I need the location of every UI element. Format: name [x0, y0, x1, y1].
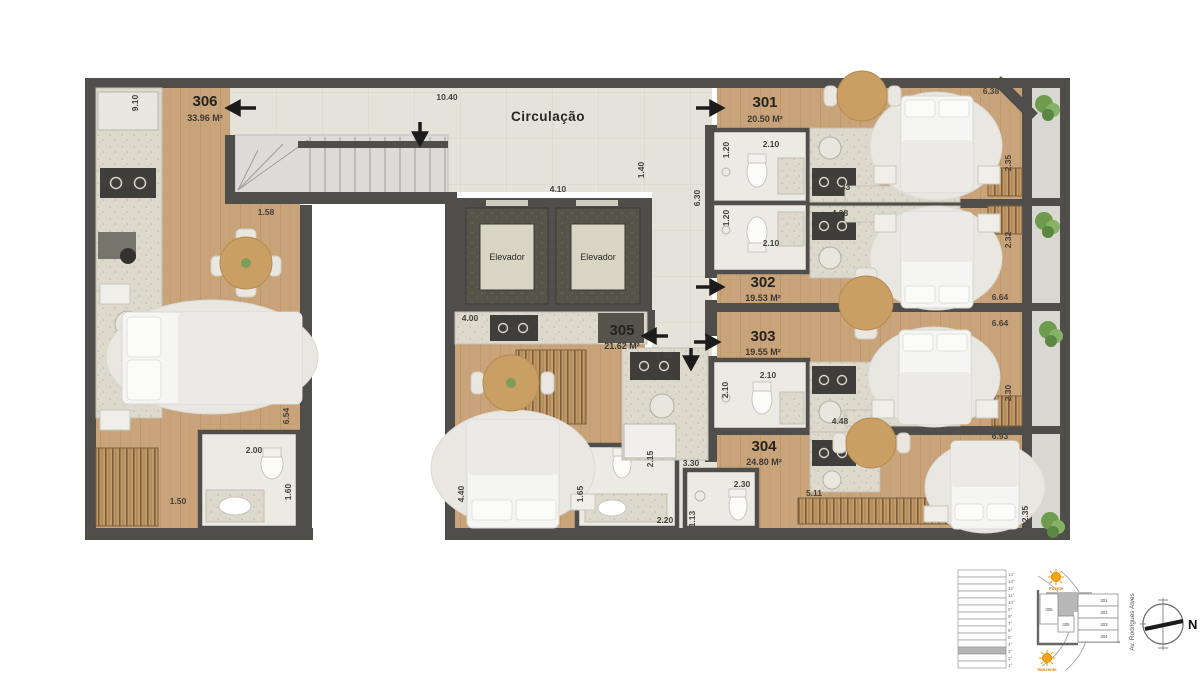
compass-icon: N: [1140, 598, 1197, 650]
dim: 6.30: [692, 189, 702, 206]
keyplan-unit-301: 301: [1100, 598, 1108, 603]
floor-row-label: 5°: [1008, 635, 1013, 640]
floor-row-label: 11°: [1008, 593, 1015, 598]
dim: 6.54: [281, 407, 291, 424]
bed-303: [868, 327, 1000, 427]
keyplan-unit-305: 305: [1062, 622, 1070, 627]
circulation-label: Circulação: [511, 109, 585, 124]
dim: 6.38: [983, 86, 1000, 96]
bed-301: [870, 92, 1002, 200]
dim: 4.10: [550, 184, 567, 194]
dim: 2.35: [1020, 505, 1030, 522]
floor-row-label: 6°: [1008, 628, 1013, 633]
compass-north-label: N: [1188, 617, 1197, 632]
dim: 2.15: [645, 450, 655, 467]
shelf-306: [96, 448, 158, 526]
sun-top-icon: Poente: [1048, 569, 1064, 591]
floor-row-label: 9°: [1008, 607, 1013, 612]
dim: 6.93: [992, 431, 1009, 441]
unit-305-area: 21.62 M²: [604, 341, 640, 351]
floor-row-label: 2°: [1008, 656, 1013, 661]
elevator-left-label: Elevador: [489, 252, 525, 262]
highlighted-floor-row: [958, 647, 1006, 654]
unit-306-number: 306: [192, 93, 217, 110]
dim: 1.13: [687, 510, 697, 527]
dim: 4.33: [834, 182, 851, 192]
dim: 2.30: [734, 479, 751, 489]
bathroom-301: [712, 130, 808, 203]
unit-303-number: 303: [750, 328, 775, 345]
floor-row-label: 7°: [1008, 621, 1013, 626]
dim: 1.60: [283, 483, 293, 500]
dim: 2.10: [760, 370, 777, 380]
elevator-right-label: Elevador: [580, 252, 616, 262]
dim: 10.40: [436, 92, 458, 102]
unit-304-area: 24.80 M²: [746, 457, 782, 467]
stairs: [235, 135, 448, 195]
dim: 4.28: [832, 208, 849, 218]
floorplan-drawing: Elevador Elevador: [0, 0, 1200, 675]
dim: 3.30: [683, 458, 700, 468]
unit-306-area: 33.96 M²: [187, 113, 223, 123]
stair-handrail: [298, 141, 448, 148]
legend-keyplan: 306 305 301 302 303 304 Poente Nascente: [1037, 569, 1136, 672]
floor-row-label: 13°: [1008, 579, 1015, 584]
keyplan-unit-302: 302: [1100, 610, 1108, 615]
unit-304-number: 304: [751, 438, 777, 455]
dim: 6.64: [992, 292, 1009, 302]
sun-bottom-icon: Nascente: [1037, 650, 1057, 672]
dim: 9.10: [130, 94, 140, 111]
floor-row-label: 4°: [1008, 642, 1013, 647]
elevator-block: Elevador Elevador: [450, 198, 652, 312]
keyplan-unit-304: 304: [1100, 634, 1108, 639]
dim: 2.10: [720, 381, 730, 398]
street-name-label: Av. Rodrigues Alves: [1129, 592, 1136, 650]
floor-row-label: 1°: [1008, 663, 1013, 668]
dim: 1.65: [575, 485, 585, 502]
dim: 1.40: [636, 161, 646, 178]
keyplan-unit-303: 303: [1100, 622, 1108, 627]
unit-301-area: 20.50 M²: [747, 114, 783, 124]
sun-bottom-label: Nascente: [1037, 667, 1057, 672]
dim: 1.58: [258, 207, 275, 217]
dim: 4.40: [456, 485, 466, 502]
dim: 4.48: [832, 416, 849, 426]
dim: 4.00: [462, 313, 479, 323]
floor-row-label: 10°: [1008, 600, 1015, 605]
floor-row-label: 8°: [1008, 614, 1013, 619]
floorplan-page: Elevador Elevador: [0, 0, 1200, 675]
dim: 6.64: [992, 318, 1009, 328]
dim: 2.10: [763, 139, 780, 149]
dim: 5.11: [806, 488, 822, 498]
dim: 1.50: [170, 496, 187, 506]
unit-302-area: 19.53 M²: [745, 293, 781, 303]
dim: 2.35: [1003, 154, 1013, 171]
floor-row-label: 3°: [1008, 649, 1013, 654]
dim: 2.10: [763, 238, 780, 248]
unit-301-number: 301: [752, 94, 777, 111]
floor-row-label: 14°: [1008, 572, 1015, 577]
dim: 1.42: [656, 350, 673, 360]
dim: 1.20: [721, 209, 731, 226]
dim: 2.20: [657, 515, 674, 525]
dim: 1.20: [721, 141, 731, 158]
keyplan-unit-306: 306: [1045, 607, 1053, 612]
unit-302-number: 302: [750, 274, 775, 291]
unit-303-area: 19.55 M²: [745, 347, 781, 357]
dim: 2.32: [1003, 231, 1013, 248]
sun-top-label: Poente: [1049, 586, 1064, 591]
legend-floor-stack: 14° 13° 12° 11° 10° 9° 8° 7° 6° 5° 4° 3°…: [958, 570, 1015, 668]
dim: 2.00: [246, 445, 263, 455]
unit-305-number: 305: [609, 322, 634, 339]
dim: 2.30: [1003, 384, 1013, 401]
floor-row-label: 12°: [1008, 586, 1015, 591]
